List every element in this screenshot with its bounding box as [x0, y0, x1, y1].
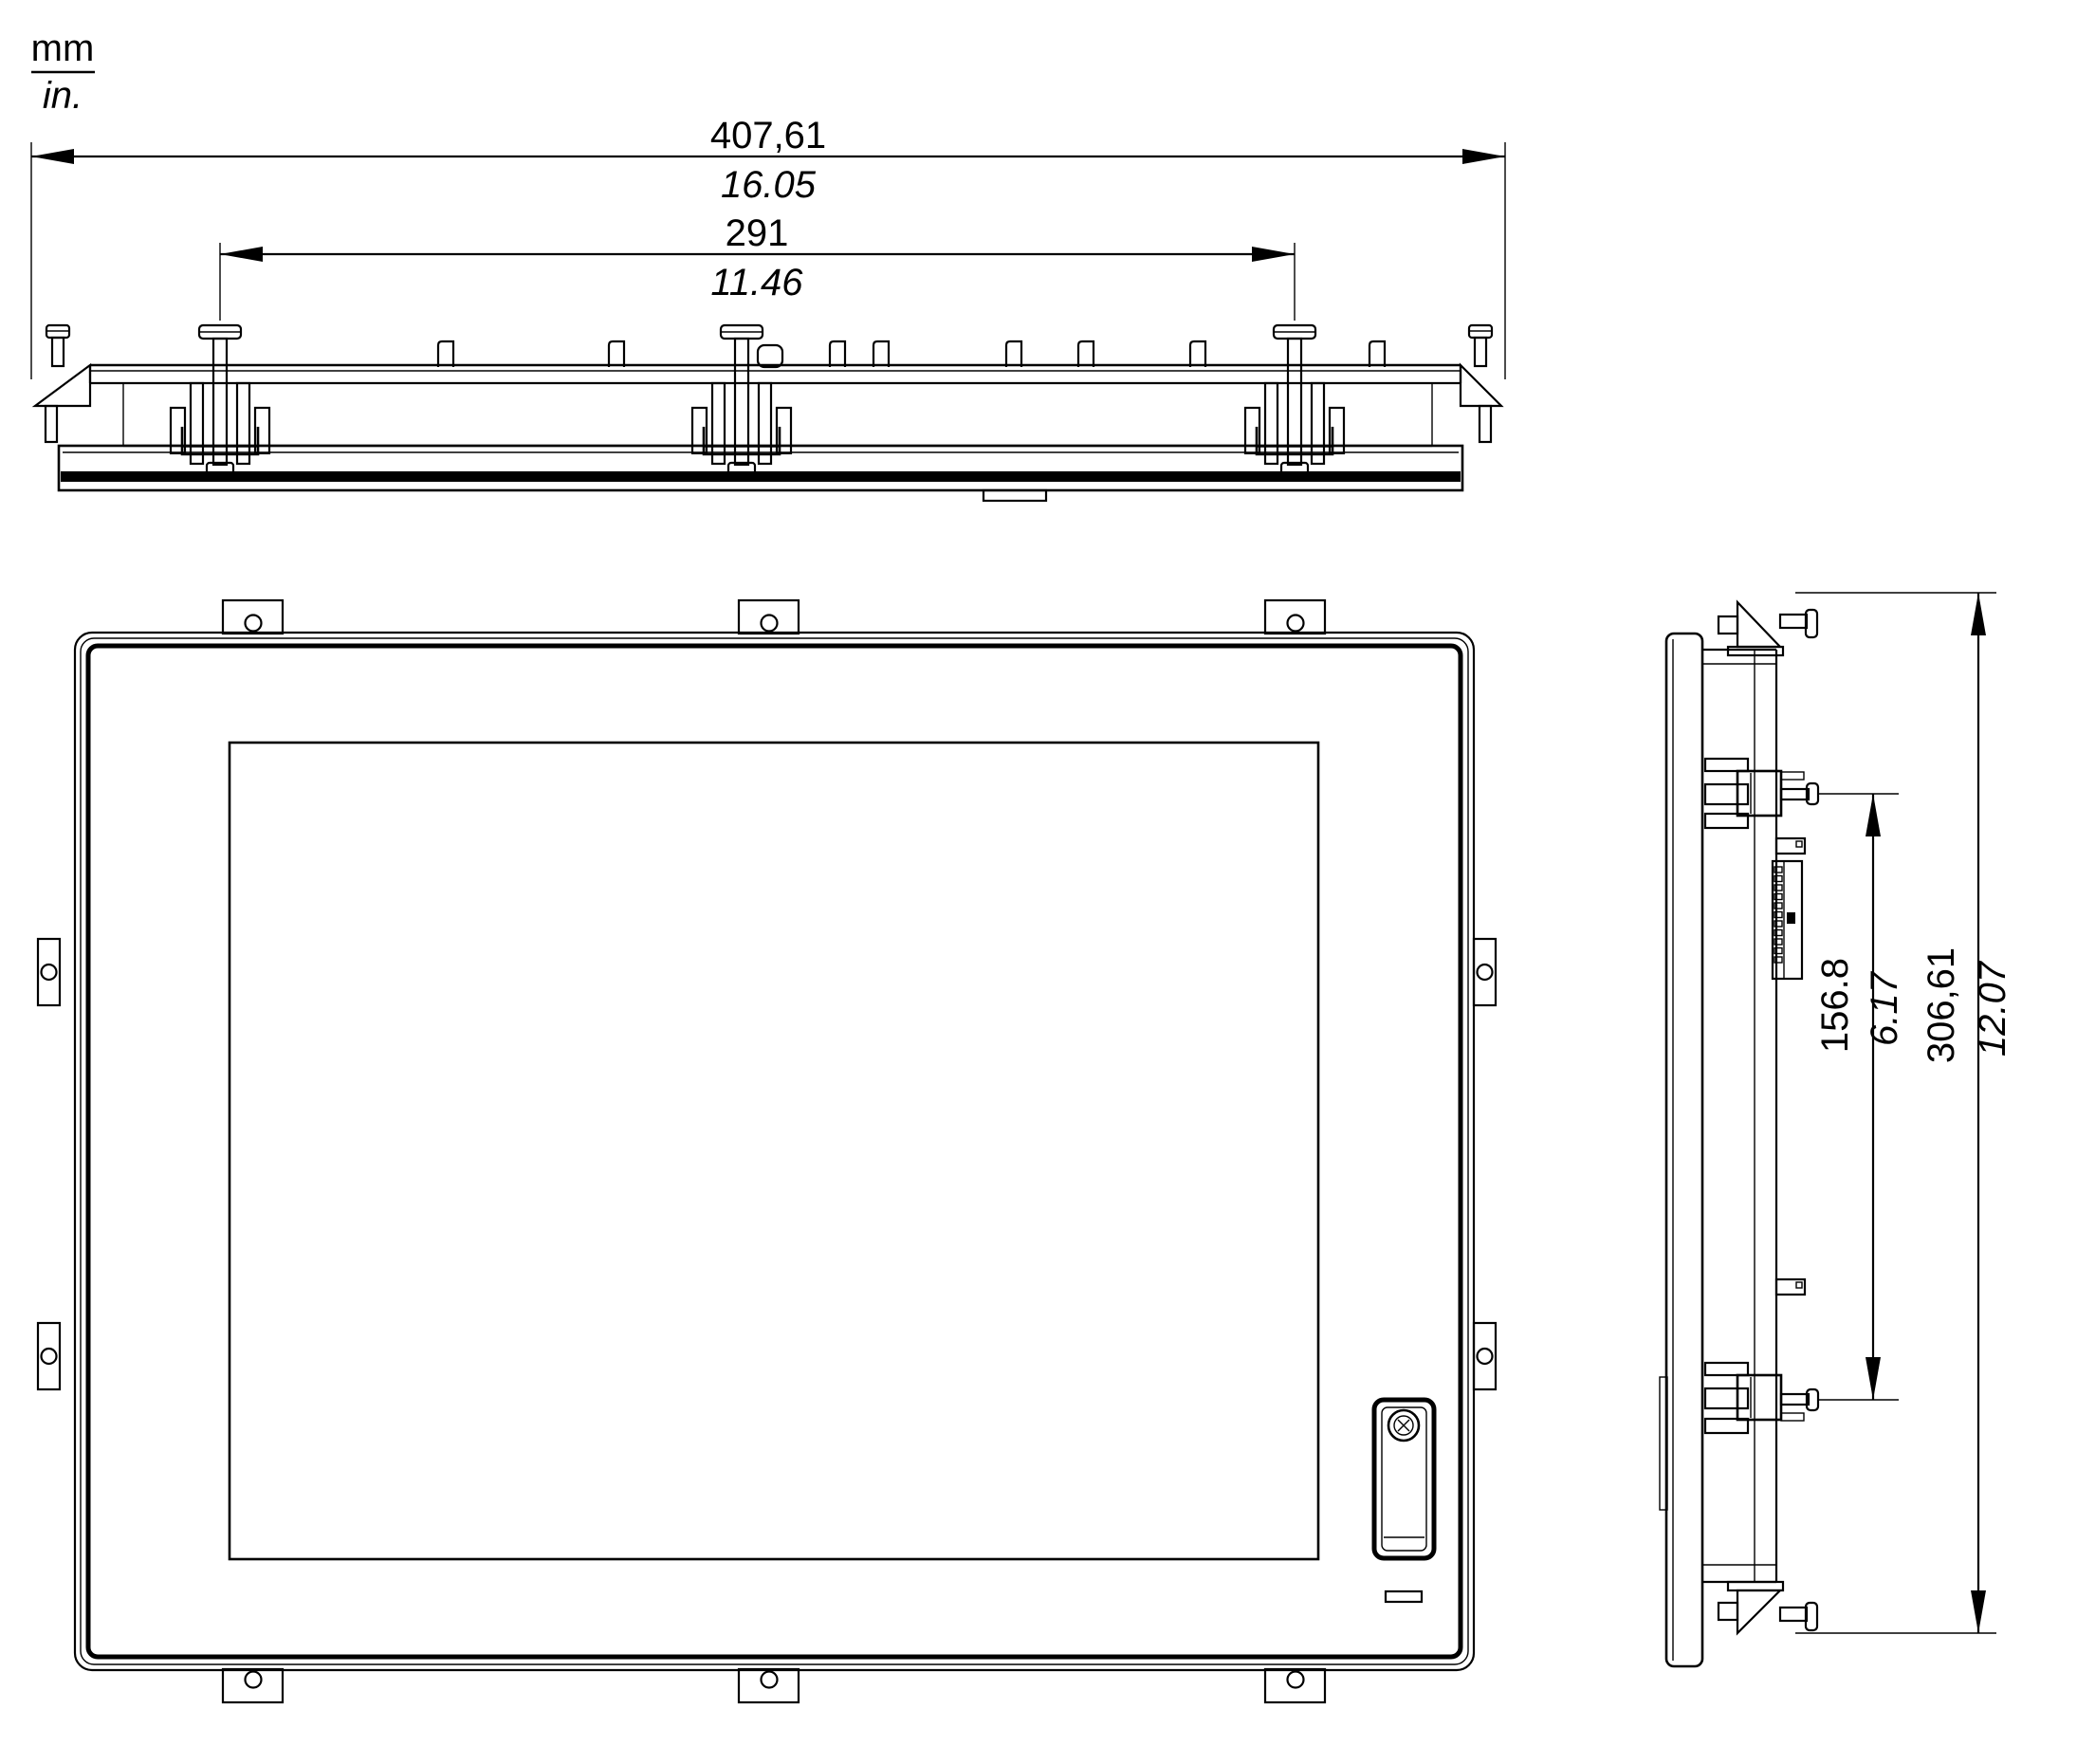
top-view [35, 325, 1501, 501]
mounting-tab [1265, 1669, 1325, 1702]
arrowhead-left [220, 247, 263, 262]
side-clamp-bottom [1705, 1363, 1818, 1433]
mounting-clamp [171, 325, 269, 476]
mounting-height-mm: 156.8 [1814, 958, 1856, 1053]
bezel-outer-line [75, 633, 1474, 1670]
rear-tab [1776, 838, 1805, 854]
mounting-tab [38, 1323, 60, 1389]
unit-inch-label: in. [43, 75, 83, 117]
mounting-tab [1474, 1323, 1496, 1389]
mounting-tab [739, 1669, 799, 1702]
mounting-tab [223, 600, 283, 634]
mounting-clamp [692, 325, 791, 476]
corner-wedge-top [1719, 602, 1817, 655]
mounting-width-in: 11.46 [710, 262, 803, 303]
unit-mm-label: mm [31, 28, 95, 69]
bezel-profile [1666, 634, 1702, 1666]
corner-screw [46, 325, 69, 366]
overall-height-in: 12.07 [1972, 960, 2013, 1057]
corner-wedge-bottom [1719, 1582, 1817, 1633]
rear-tab [1776, 1279, 1805, 1295]
bottom-step [983, 490, 1046, 501]
front-view [38, 600, 1496, 1702]
corner-screw [1469, 325, 1492, 366]
side-view [1660, 602, 1818, 1666]
mounting-width-mm: 291 [726, 212, 789, 254]
mounting-tab [223, 1669, 283, 1702]
arrowhead-bottom [1971, 1590, 1986, 1633]
bezel-mid-line [81, 638, 1468, 1664]
dimension-mounting-height: 156.8 6.17 [1814, 794, 1905, 1400]
mounting-clamp [1245, 325, 1344, 476]
rear-lug [758, 345, 782, 367]
dimension-drawing-page: mm in. 407,61 16.05 291 11.46 [0, 0, 2077, 1764]
side-clamp-top [1705, 759, 1818, 828]
unit-legend: mm in. [31, 28, 95, 117]
arrowhead-right [1462, 149, 1505, 164]
arrowhead-top [1866, 794, 1881, 836]
display-screen [230, 743, 1318, 1559]
mounting-tab [739, 600, 799, 634]
dimension-overall-height: 306,61 12.07 [1795, 593, 2013, 1633]
corner-wedge-right [1461, 365, 1501, 406]
overall-width-in: 16.05 [721, 164, 817, 206]
mounting-height-in: 6.17 [1864, 970, 1905, 1046]
arrowhead-top [1971, 593, 1986, 635]
corner-wedge-left [35, 365, 90, 406]
bezel-inner-line [88, 646, 1461, 1657]
arrowhead-right [1252, 247, 1295, 262]
mounting-tab [1474, 939, 1496, 1005]
technical-drawing: mm in. 407,61 16.05 291 11.46 [0, 0, 2077, 1764]
arrowhead-left [31, 149, 74, 164]
mounting-tab [1265, 600, 1325, 634]
arrowhead-bottom [1866, 1357, 1881, 1400]
overall-height-mm: 306,61 [1921, 947, 1962, 1063]
overall-width-mm: 407,61 [710, 115, 826, 156]
dimension-mounting-width: 291 11.46 [220, 212, 1295, 321]
status-led [1386, 1591, 1422, 1602]
front-hatch [1374, 1400, 1434, 1558]
mounting-tab [38, 939, 60, 1005]
